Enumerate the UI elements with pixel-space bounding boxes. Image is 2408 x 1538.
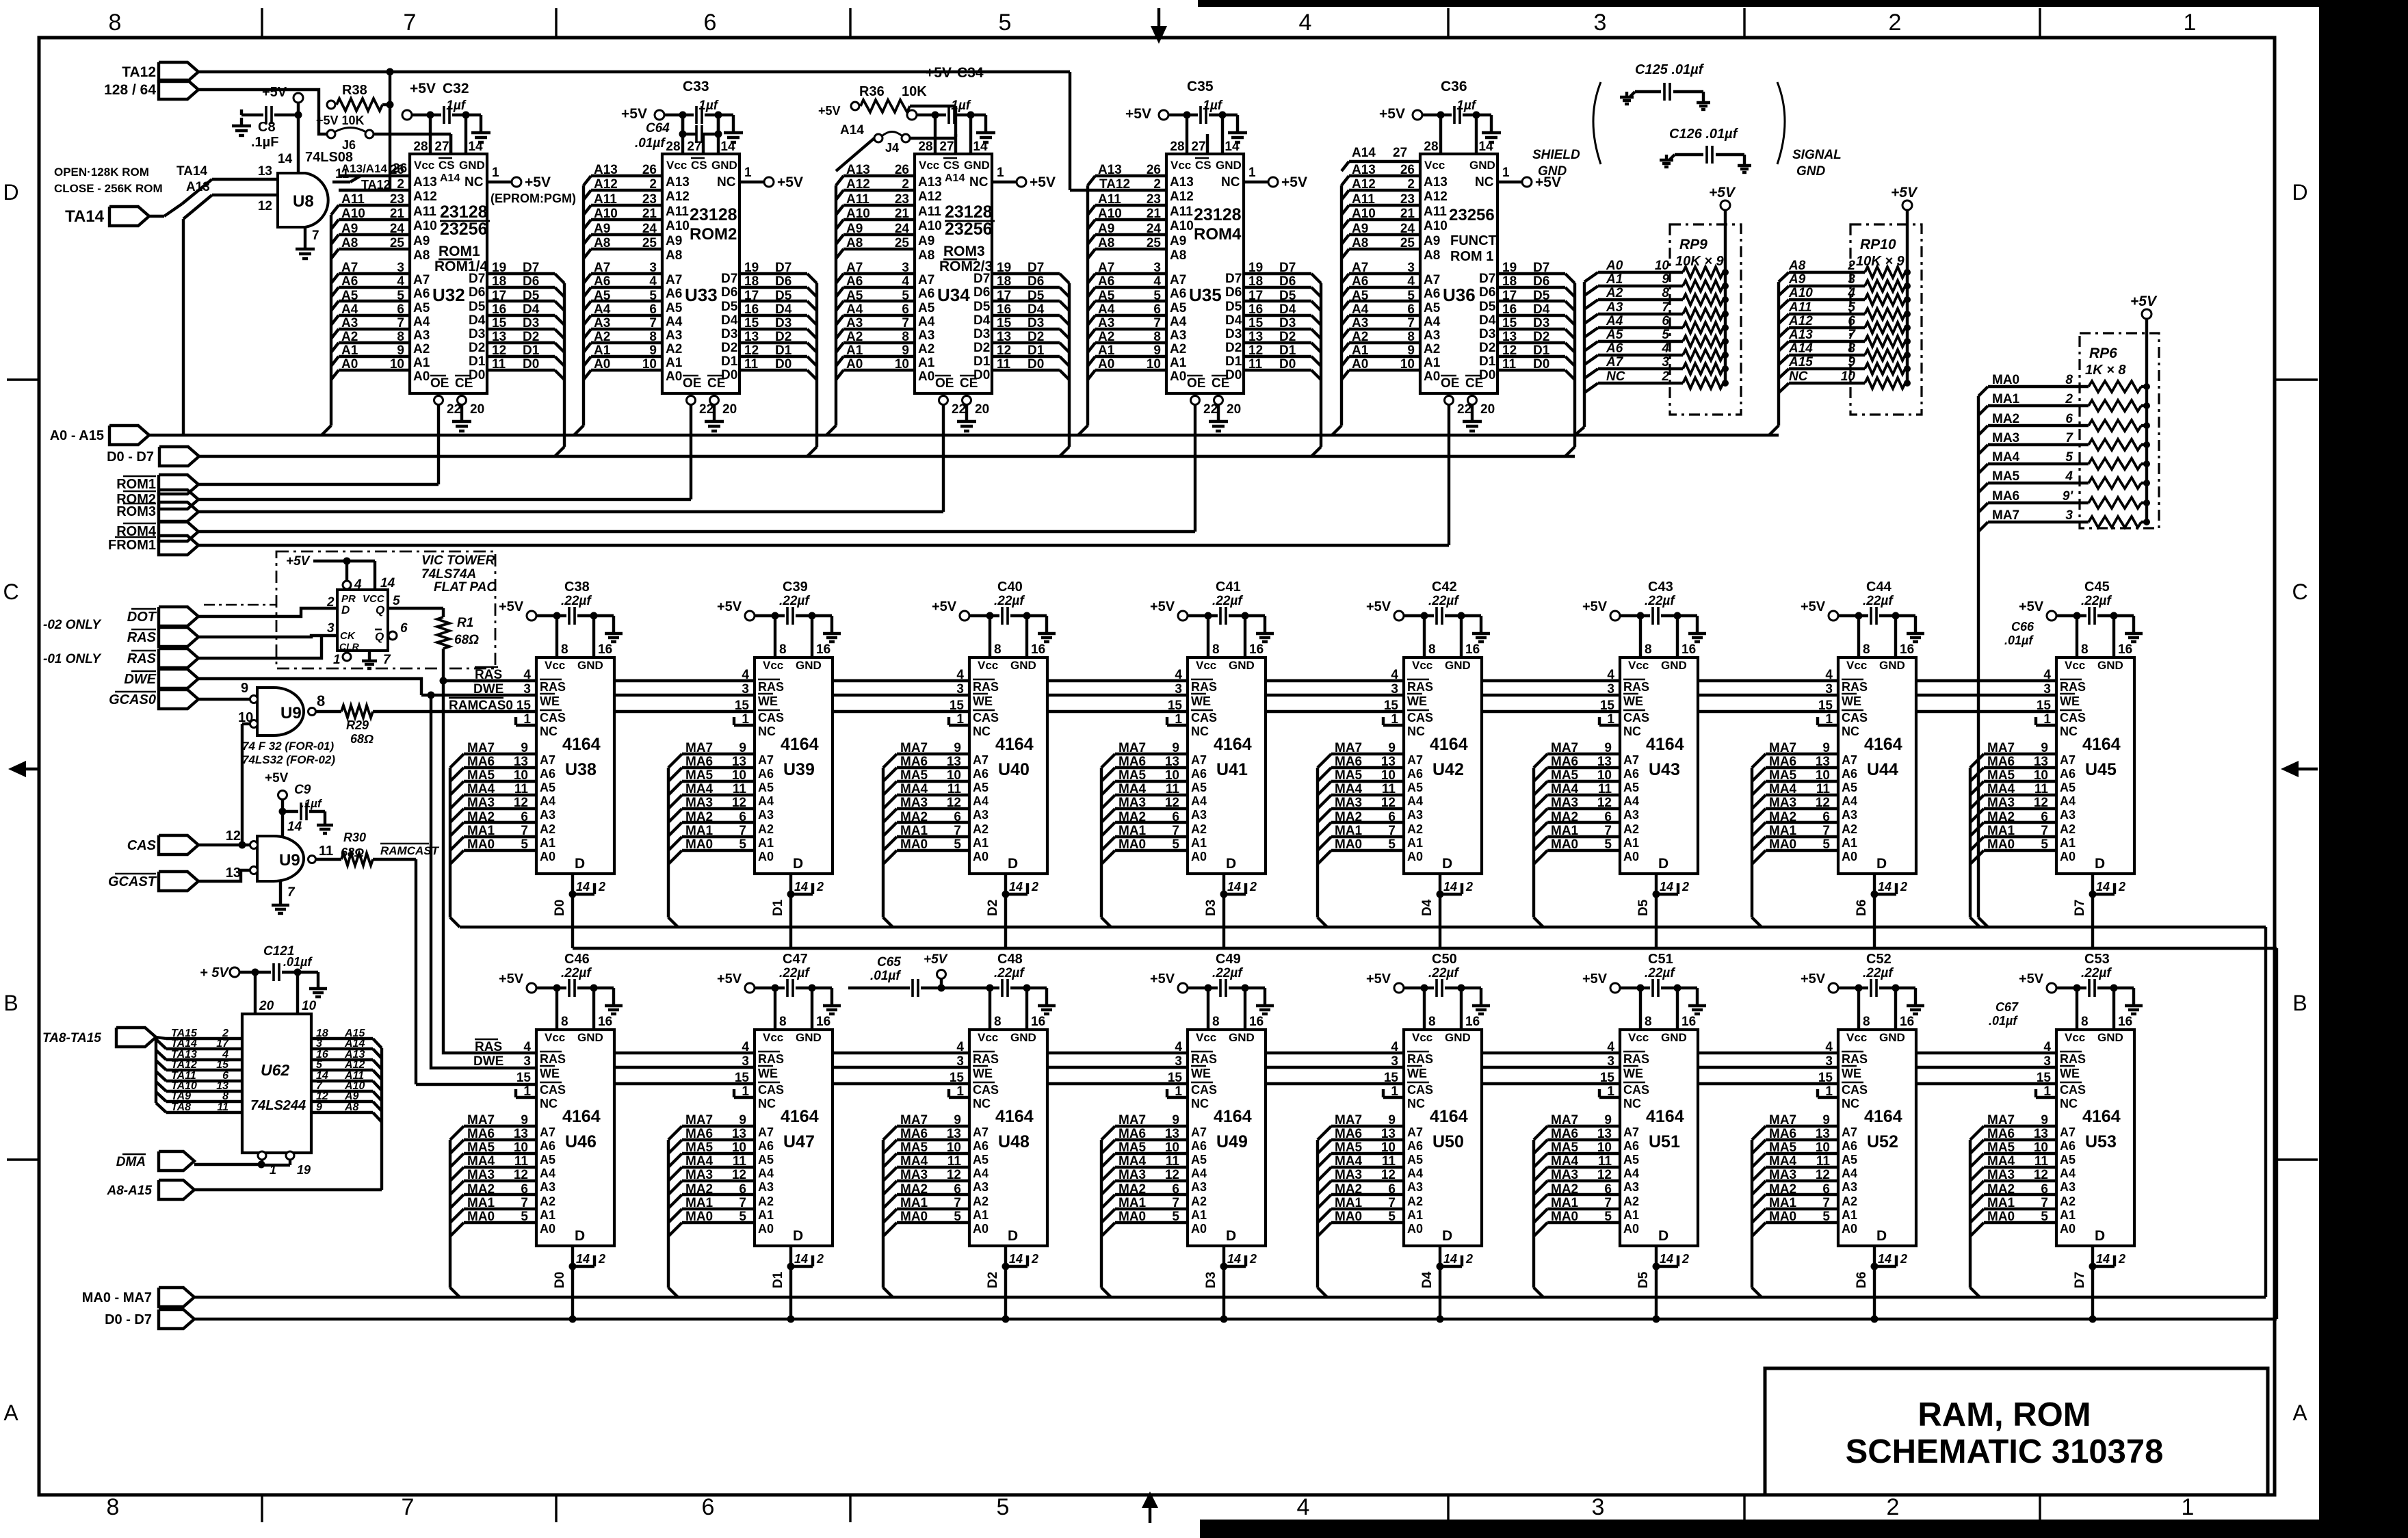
svg-text:26: 26 <box>895 163 909 177</box>
svg-text:12: 12 <box>492 343 506 358</box>
svg-text:6: 6 <box>1848 314 1855 328</box>
svg-text:16: 16 <box>598 1015 612 1029</box>
svg-text:A0: A0 <box>1623 850 1639 863</box>
svg-text:16: 16 <box>492 302 506 317</box>
svg-text:5: 5 <box>954 1210 961 1224</box>
svg-text:D5: D5 <box>523 289 540 303</box>
svg-text:A2: A2 <box>2060 1195 2076 1208</box>
svg-text:Vcc: Vcc <box>1846 1031 1867 1044</box>
svg-text:4: 4 <box>1391 668 1398 682</box>
svg-text:A11: A11 <box>1352 192 1375 207</box>
svg-text:MA5: MA5 <box>1551 768 1579 783</box>
svg-text:A10: A10 <box>918 219 942 233</box>
svg-text:3: 3 <box>1407 261 1415 275</box>
svg-text:C52: C52 <box>1866 952 1892 967</box>
svg-text:RAS: RAS <box>2060 680 2086 694</box>
svg-text:D5: D5 <box>1225 300 1242 314</box>
svg-text:14: 14 <box>1009 1252 1023 1266</box>
svg-text:.22µf: .22µf <box>1645 966 1675 980</box>
svg-text:6: 6 <box>704 10 717 36</box>
svg-text:4: 4 <box>397 274 404 289</box>
svg-text:6: 6 <box>521 810 528 824</box>
svg-text:A10: A10 <box>846 207 870 221</box>
svg-text:9: 9 <box>1153 343 1161 358</box>
svg-text:A7: A7 <box>1352 261 1368 275</box>
svg-text:A9: A9 <box>1352 222 1368 236</box>
svg-text:4: 4 <box>1825 668 1833 682</box>
svg-text:DOT: DOT <box>127 610 157 625</box>
svg-text:A5: A5 <box>594 289 611 303</box>
svg-text:A8: A8 <box>1788 259 1806 273</box>
svg-text:+5V: +5V <box>717 599 742 614</box>
svg-text:U34: U34 <box>937 285 970 305</box>
svg-text:WE: WE <box>1191 1067 1211 1080</box>
svg-text:CAS: CAS <box>2060 1083 2086 1097</box>
svg-text:17: 17 <box>744 289 759 303</box>
svg-text:A9: A9 <box>1170 234 1186 248</box>
svg-text:6: 6 <box>902 302 909 317</box>
svg-text:A9: A9 <box>846 222 863 236</box>
svg-text:RAS: RAS <box>475 1040 502 1054</box>
svg-text:WE: WE <box>758 694 778 708</box>
svg-text:A7: A7 <box>341 261 358 275</box>
svg-text:12: 12 <box>744 343 759 358</box>
svg-text:.1µf: .1µf <box>301 797 323 810</box>
svg-text:3: 3 <box>1607 1054 1614 1069</box>
svg-text:A0: A0 <box>973 850 989 863</box>
svg-text:GND: GND <box>1010 659 1036 672</box>
svg-text:.01µf: .01µf <box>283 955 313 969</box>
svg-text:6: 6 <box>1388 1182 1396 1197</box>
svg-text:A6: A6 <box>1623 767 1639 781</box>
svg-text:15: 15 <box>950 1071 965 1085</box>
svg-text:A1: A1 <box>1098 343 1115 358</box>
svg-text:11: 11 <box>1502 357 1517 372</box>
svg-text:MA6: MA6 <box>1987 755 2015 769</box>
svg-text:NC: NC <box>973 725 991 738</box>
svg-text:5: 5 <box>2041 837 2048 852</box>
svg-text:D: D <box>2095 856 2105 872</box>
svg-text:MA3: MA3 <box>1551 796 1578 810</box>
svg-text:MA5: MA5 <box>1987 1141 2015 1155</box>
svg-text:9: 9 <box>902 343 909 358</box>
svg-text:3: 3 <box>956 682 964 696</box>
svg-text:A8: A8 <box>413 248 430 263</box>
svg-text:MA2: MA2 <box>467 1182 495 1197</box>
svg-text:7: 7 <box>739 1196 746 1210</box>
svg-text:MA5: MA5 <box>1335 1141 1363 1155</box>
svg-text:16: 16 <box>816 642 830 657</box>
svg-text:A1: A1 <box>540 1208 555 1222</box>
svg-text:D3: D3 <box>1533 316 1549 330</box>
svg-text:5: 5 <box>902 289 909 303</box>
svg-text:MA0: MA0 <box>1992 373 2019 387</box>
svg-text:24: 24 <box>1147 222 1162 236</box>
svg-text:7: 7 <box>404 10 417 36</box>
svg-text:.1µF: .1µF <box>251 135 278 150</box>
svg-text:3: 3 <box>1662 355 1669 369</box>
svg-text:8: 8 <box>902 330 909 344</box>
svg-text:13: 13 <box>514 755 528 769</box>
svg-text:D1: D1 <box>721 354 738 369</box>
svg-text:C66: C66 <box>2011 620 2034 634</box>
svg-text:A13: A13 <box>918 175 942 190</box>
svg-text:6: 6 <box>702 1494 715 1520</box>
svg-text:A2: A2 <box>1842 1195 1857 1208</box>
svg-text:A4: A4 <box>1170 315 1187 329</box>
svg-text:A5: A5 <box>758 781 774 794</box>
svg-text:D: D <box>1226 1228 1236 1244</box>
svg-text:A6: A6 <box>1352 274 1368 289</box>
svg-text:MA1: MA1 <box>685 824 714 838</box>
svg-text:NC: NC <box>1623 725 1641 738</box>
svg-text:MA1: MA1 <box>1118 1196 1147 1210</box>
svg-text:A: A <box>3 1400 18 1425</box>
svg-text:A8: A8 <box>1170 248 1186 263</box>
svg-text:D3: D3 <box>973 327 990 341</box>
svg-text:SHIELD: SHIELD <box>1532 148 1580 162</box>
svg-text:5: 5 <box>1662 328 1669 342</box>
svg-text:MA1: MA1 <box>1987 824 2015 838</box>
svg-text:MA3: MA3 <box>685 796 713 810</box>
svg-text:D: D <box>3 180 18 205</box>
svg-text:24: 24 <box>895 222 910 236</box>
svg-text:A6: A6 <box>1606 341 1623 356</box>
svg-text:+5V: +5V <box>410 81 436 96</box>
svg-text:U47: U47 <box>783 1132 815 1151</box>
svg-text:.22µf: .22µf <box>1863 966 1894 980</box>
svg-text:A5: A5 <box>1191 1153 1207 1166</box>
svg-text:A1: A1 <box>973 1208 989 1222</box>
svg-text:MA5: MA5 <box>1551 1141 1579 1155</box>
svg-text:A5: A5 <box>973 1153 989 1166</box>
svg-text:9: 9 <box>1407 343 1415 358</box>
svg-text:Vcc: Vcc <box>666 159 687 172</box>
svg-text:10: 10 <box>2034 1141 2048 1155</box>
svg-text:10: 10 <box>1597 1141 1612 1155</box>
svg-text:4: 4 <box>1847 286 1855 300</box>
svg-text:WE: WE <box>1623 694 1643 708</box>
svg-text:GND: GND <box>1010 1031 1036 1044</box>
svg-text:A1: A1 <box>540 836 555 850</box>
svg-text:8: 8 <box>1645 642 1652 657</box>
svg-text:7: 7 <box>954 1196 961 1210</box>
svg-text:A7: A7 <box>2060 1125 2076 1139</box>
svg-text:WE: WE <box>1407 1067 1427 1080</box>
svg-text:CAS: CAS <box>127 838 157 853</box>
svg-text:7: 7 <box>383 653 391 667</box>
svg-text:MA5: MA5 <box>1769 1141 1797 1155</box>
svg-text:RAM, ROM: RAM, ROM <box>1918 1396 2091 1433</box>
svg-text:MA1: MA1 <box>900 1196 928 1210</box>
svg-text:27: 27 <box>939 140 954 154</box>
svg-text:27: 27 <box>1191 140 1205 154</box>
svg-text:6: 6 <box>1407 302 1415 317</box>
svg-text:GND: GND <box>1661 659 1687 672</box>
svg-text:A0: A0 <box>1842 850 1857 863</box>
svg-text:A6: A6 <box>918 287 934 301</box>
svg-text:8: 8 <box>1863 1015 1870 1029</box>
svg-text:16: 16 <box>744 302 759 317</box>
svg-text:TA8-TA15: TA8-TA15 <box>42 1031 101 1045</box>
svg-text:U52: U52 <box>1867 1132 1898 1151</box>
svg-text:MA3: MA3 <box>1335 1168 1362 1182</box>
svg-text:6: 6 <box>1153 302 1161 317</box>
svg-text:15: 15 <box>216 1059 229 1071</box>
svg-text:MA4: MA4 <box>1987 782 2015 796</box>
svg-text:+5V: +5V <box>1150 972 1175 987</box>
svg-text:D: D <box>793 856 803 872</box>
svg-text:MA7: MA7 <box>1118 741 1146 755</box>
svg-text:A2: A2 <box>846 330 863 344</box>
svg-text:Vcc: Vcc <box>978 659 998 672</box>
svg-text:NC: NC <box>1191 725 1209 738</box>
svg-text:U49: U49 <box>1216 1132 1248 1151</box>
svg-text:A4: A4 <box>1623 794 1639 808</box>
svg-text:RP10: RP10 <box>1860 237 1896 252</box>
svg-text:A0: A0 <box>918 369 934 384</box>
svg-text:8: 8 <box>779 642 787 657</box>
svg-text:74 F 32 (FOR-01): 74 F 32 (FOR-01) <box>242 740 334 753</box>
svg-text:.22µf: .22µf <box>994 966 1025 980</box>
svg-text:CS: CS <box>943 159 960 172</box>
svg-text:MA1: MA1 <box>1335 1196 1363 1210</box>
svg-text:A15: A15 <box>1788 355 1813 369</box>
svg-text:3: 3 <box>1594 10 1607 36</box>
svg-text:2: 2 <box>2065 392 2073 406</box>
svg-text:D: D <box>793 1228 803 1244</box>
svg-text:MA2: MA2 <box>900 1182 928 1197</box>
svg-text:A7: A7 <box>918 273 934 287</box>
svg-text:10: 10 <box>947 1141 961 1155</box>
svg-text:MA6: MA6 <box>685 755 713 769</box>
svg-text:GND: GND <box>1469 159 1495 172</box>
svg-text:3: 3 <box>956 1054 964 1069</box>
svg-text:MA6: MA6 <box>1769 1127 1796 1141</box>
svg-text:A4: A4 <box>1191 1166 1207 1180</box>
svg-text:12: 12 <box>514 1168 528 1182</box>
svg-text:GND: GND <box>459 159 485 172</box>
svg-text:D2: D2 <box>986 900 1000 916</box>
svg-text:D0: D0 <box>775 357 791 372</box>
svg-text:.01µf: .01µf <box>2004 634 2034 647</box>
svg-text:7: 7 <box>402 1494 415 1520</box>
svg-text:D1: D1 <box>523 343 540 358</box>
svg-text:MA0: MA0 <box>467 837 495 852</box>
svg-text:5: 5 <box>521 1210 528 1224</box>
svg-text:.1µf: .1µf <box>443 99 467 113</box>
svg-text:A7: A7 <box>973 1125 989 1139</box>
svg-text:GND: GND <box>1796 164 1826 179</box>
svg-text:A3: A3 <box>973 808 989 822</box>
svg-text:U48: U48 <box>998 1132 1030 1151</box>
svg-text:.22µf: .22µf <box>1212 594 1243 608</box>
svg-text:CLR: CLR <box>339 641 360 652</box>
svg-text:7: 7 <box>397 316 404 330</box>
svg-text:MA1: MA1 <box>1335 824 1363 838</box>
svg-text:MA7: MA7 <box>467 1113 495 1128</box>
svg-text:RAS: RAS <box>127 630 157 645</box>
svg-text:MA6: MA6 <box>685 1127 713 1141</box>
svg-text:D7: D7 <box>2073 1272 2087 1288</box>
svg-text:16: 16 <box>2118 1015 2132 1029</box>
svg-text:13: 13 <box>732 1127 746 1141</box>
svg-text:+ 5V: + 5V <box>200 965 229 980</box>
svg-text:ROM3: ROM3 <box>116 504 156 519</box>
svg-text:MA4: MA4 <box>467 782 495 796</box>
svg-text:A14: A14 <box>1788 341 1813 356</box>
svg-text:13: 13 <box>1248 330 1263 344</box>
svg-text:3: 3 <box>316 1038 322 1050</box>
svg-text:12: 12 <box>1165 796 1179 810</box>
svg-text:Vcc: Vcc <box>1170 159 1191 172</box>
svg-text:12: 12 <box>1597 796 1612 810</box>
svg-text:13: 13 <box>947 755 961 769</box>
svg-text:15: 15 <box>516 1071 532 1085</box>
svg-text:4: 4 <box>1391 1040 1398 1054</box>
svg-text:A5: A5 <box>1424 301 1441 315</box>
svg-text:3: 3 <box>1825 682 1833 696</box>
svg-text:D2: D2 <box>1279 330 1296 344</box>
svg-text:2: 2 <box>1465 880 1473 894</box>
svg-text:A8: A8 <box>666 248 682 263</box>
svg-text:A5: A5 <box>1098 289 1115 303</box>
svg-text:CAS: CAS <box>758 711 784 725</box>
svg-text:13: 13 <box>1597 755 1612 769</box>
svg-text:A0: A0 <box>758 850 774 863</box>
svg-text:A13: A13 <box>594 163 618 177</box>
svg-text:10: 10 <box>1147 357 1161 372</box>
svg-text:MA1: MA1 <box>685 1196 714 1210</box>
svg-text:A9: A9 <box>594 222 610 236</box>
svg-text:CS: CS <box>439 159 455 172</box>
svg-text:+5V: +5V <box>1030 174 1056 190</box>
svg-text:14: 14 <box>1660 880 1673 894</box>
svg-text:ROM4: ROM4 <box>1194 225 1242 244</box>
svg-text:2: 2 <box>1153 177 1161 192</box>
svg-text:20: 20 <box>259 999 274 1013</box>
svg-text:68Ω: 68Ω <box>350 732 374 746</box>
svg-text:5: 5 <box>1172 1210 1179 1224</box>
svg-text:A2: A2 <box>1191 822 1207 836</box>
svg-text:NC: NC <box>1191 1097 1209 1110</box>
svg-text:D6: D6 <box>721 285 737 300</box>
svg-text:D5: D5 <box>1279 289 1296 303</box>
svg-text:3: 3 <box>742 1054 749 1069</box>
svg-text:74LS244: 74LS244 <box>250 1098 306 1113</box>
svg-text:A4: A4 <box>413 315 430 329</box>
svg-text:A7: A7 <box>758 1125 774 1139</box>
svg-text:3: 3 <box>2043 1054 2051 1069</box>
svg-text:14: 14 <box>576 880 590 894</box>
svg-text:A0: A0 <box>973 1222 989 1236</box>
svg-text:D4: D4 <box>1533 302 1550 317</box>
svg-text:A4: A4 <box>666 315 683 329</box>
svg-text:A4: A4 <box>918 315 935 329</box>
svg-text:13: 13 <box>1381 755 1396 769</box>
svg-text:RAS: RAS <box>1407 1052 1433 1066</box>
svg-text:17: 17 <box>1502 289 1517 303</box>
svg-text:2: 2 <box>902 177 909 192</box>
svg-text:A6: A6 <box>1842 767 1857 781</box>
svg-text:8: 8 <box>1212 1015 1220 1029</box>
svg-text:17: 17 <box>216 1038 229 1050</box>
svg-text:TA14: TA14 <box>65 207 105 226</box>
svg-text:D3: D3 <box>1225 327 1242 341</box>
svg-text:MA6: MA6 <box>1118 755 1146 769</box>
svg-text:D: D <box>1876 1228 1887 1244</box>
svg-text:MA6: MA6 <box>1335 1127 1362 1141</box>
svg-text:OE: OE <box>430 376 449 391</box>
svg-text:C126 .01µf: C126 .01µf <box>1669 127 1739 142</box>
svg-text:A0: A0 <box>758 1222 774 1236</box>
svg-text:A5: A5 <box>413 301 430 315</box>
svg-text:11: 11 <box>514 782 529 796</box>
svg-text:4: 4 <box>1299 10 1312 36</box>
svg-text:5: 5 <box>997 1494 1010 1520</box>
svg-text:A4: A4 <box>973 1166 989 1180</box>
svg-text:D4: D4 <box>1225 313 1242 328</box>
svg-text:MA7: MA7 <box>1987 1113 2015 1128</box>
svg-text:MA3: MA3 <box>900 1168 928 1182</box>
svg-text:D5: D5 <box>721 300 738 314</box>
svg-text:8: 8 <box>561 642 568 657</box>
svg-text:A6: A6 <box>758 767 774 781</box>
svg-text:A1: A1 <box>973 836 989 850</box>
svg-text:MA2: MA2 <box>1769 810 1796 824</box>
svg-text:16: 16 <box>1900 1015 1914 1029</box>
svg-text:5: 5 <box>1604 837 1612 852</box>
svg-text:CLOSE - 256K ROM: CLOSE - 256K ROM <box>54 182 163 195</box>
svg-text:D7: D7 <box>469 272 485 286</box>
svg-text:5: 5 <box>649 289 657 303</box>
svg-text:5: 5 <box>1388 1210 1396 1224</box>
svg-text:A4: A4 <box>758 794 774 808</box>
svg-text:19: 19 <box>492 261 506 275</box>
svg-text:8: 8 <box>222 1091 228 1102</box>
svg-text:A0: A0 <box>1170 369 1186 384</box>
svg-text:MA2: MA2 <box>685 810 713 824</box>
svg-text:9: 9 <box>1822 1113 1830 1128</box>
svg-text:U38: U38 <box>565 760 597 779</box>
svg-text:Vcc: Vcc <box>1628 659 1649 672</box>
svg-text:A5: A5 <box>846 289 863 303</box>
svg-text:.1µf: .1µf <box>1199 99 1223 113</box>
svg-text:11: 11 <box>744 357 759 372</box>
svg-text:U42: U42 <box>1432 760 1464 779</box>
svg-text:MA3: MA3 <box>1335 796 1362 810</box>
svg-text:A6: A6 <box>973 767 989 781</box>
svg-text:16: 16 <box>1031 642 1045 657</box>
svg-text:MA6: MA6 <box>467 755 495 769</box>
svg-text:15: 15 <box>2037 699 2052 713</box>
svg-text:A1: A1 <box>2060 836 2076 850</box>
svg-text:MA7: MA7 <box>1551 1113 1578 1128</box>
svg-text:A2: A2 <box>918 342 934 356</box>
svg-text:D1: D1 <box>775 343 792 358</box>
svg-text:7: 7 <box>2065 431 2073 445</box>
svg-text:19: 19 <box>297 1163 311 1177</box>
svg-text:GND: GND <box>796 1031 822 1044</box>
svg-text:WE: WE <box>758 1067 778 1080</box>
svg-text:MA0: MA0 <box>900 1210 928 1224</box>
svg-text:U51: U51 <box>1649 1132 1680 1151</box>
svg-text:CAS: CAS <box>1407 1083 1433 1097</box>
svg-text:MA5: MA5 <box>467 1141 495 1155</box>
svg-text:16: 16 <box>1248 302 1263 317</box>
svg-text:D6: D6 <box>1855 900 1869 916</box>
svg-text:C36: C36 <box>1441 79 1467 94</box>
